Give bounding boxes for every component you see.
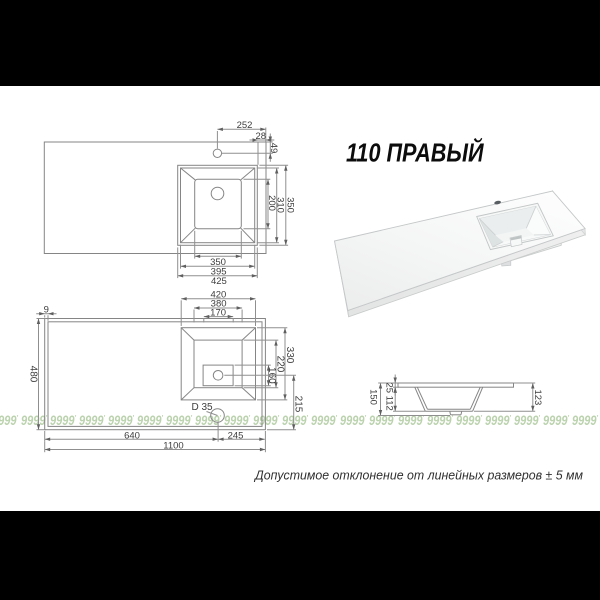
svg-text:1100: 1100 (163, 440, 183, 451)
svg-text:252: 252 (237, 120, 253, 131)
svg-text:25: 25 (384, 383, 395, 394)
svg-text:9999′: 9999′ (311, 413, 337, 428)
svg-text:9999′: 9999′ (485, 413, 511, 428)
svg-text:150: 150 (367, 389, 378, 405)
svg-text:123: 123 (532, 389, 543, 405)
svg-text:110 ПРАВЫЙ: 110 ПРАВЫЙ (346, 138, 485, 168)
svg-text:9999′: 9999′ (572, 413, 598, 428)
svg-text:350: 350 (285, 197, 296, 213)
svg-text:425: 425 (211, 276, 227, 287)
svg-text:28: 28 (256, 131, 267, 142)
svg-text:215: 215 (292, 396, 303, 413)
svg-text:49: 49 (268, 143, 279, 154)
svg-text:9999′: 9999′ (0, 413, 18, 428)
svg-text:9999′: 9999′ (340, 413, 366, 428)
svg-text:9: 9 (44, 305, 49, 316)
svg-text:480: 480 (28, 366, 39, 383)
svg-text:Допустимое отклонение от линей: Допустимое отклонение от линейных размер… (253, 469, 583, 483)
svg-text:9999′: 9999′ (514, 413, 540, 428)
svg-text:310: 310 (275, 197, 286, 213)
svg-text:9999′: 9999′ (543, 413, 569, 428)
svg-text:112: 112 (384, 396, 395, 411)
svg-text:9999′: 9999′ (282, 413, 308, 428)
svg-text:640: 640 (124, 430, 140, 441)
svg-text:D 35: D 35 (191, 402, 213, 413)
svg-text:170: 170 (210, 307, 226, 318)
svg-text:9999′: 9999′ (21, 413, 47, 428)
svg-text:245: 245 (228, 430, 244, 441)
